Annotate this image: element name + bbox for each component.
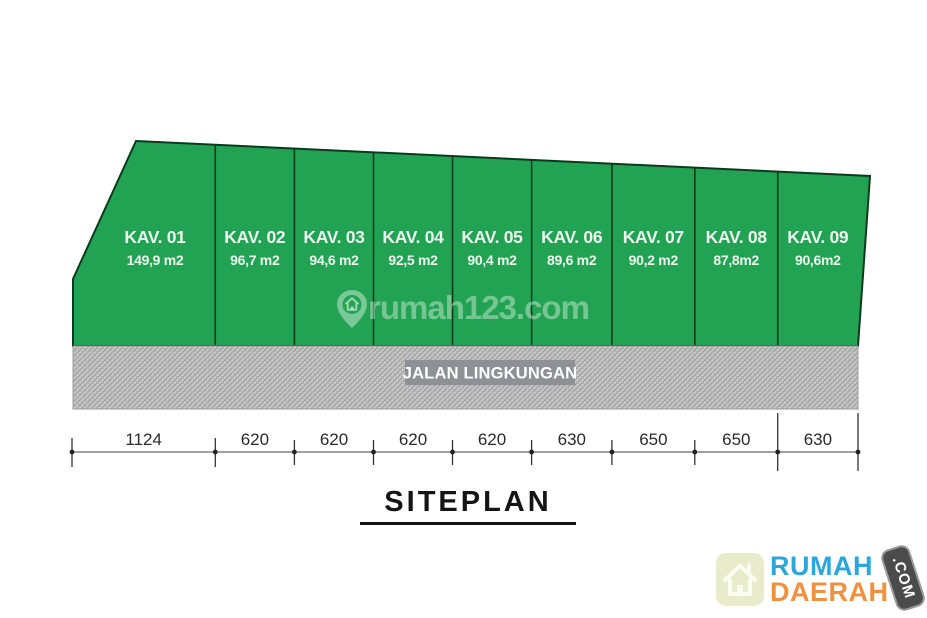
dimension-chain: 1124 620 620 620 620 630 650 650 630 (70, 413, 861, 471)
road: JALAN LINGKUNGAN (73, 346, 858, 409)
brand-name-line2: DAERAH (770, 579, 889, 605)
plot-label-area: 90,2 m2 (629, 252, 679, 268)
plot-label-area: 96,7 m2 (230, 252, 280, 268)
plot-label-name: KAV. 08 (706, 227, 768, 247)
dimension-value: 630 (558, 430, 586, 449)
plot-label-area: 87,8m2 (713, 252, 759, 268)
siteplan-canvas: KAV. 01 149,9 m2 KAV. 02 96,7 m2 KAV. 03… (0, 0, 927, 618)
dimension-value: 650 (639, 430, 667, 449)
plot-label-area: 92,5 m2 (388, 252, 438, 268)
plot-label-name: KAV. 05 (461, 227, 523, 247)
road-label: JALAN LINGKUNGAN (403, 365, 578, 383)
plot-label-name: KAV. 06 (541, 227, 603, 247)
dimension-value: 620 (399, 430, 427, 449)
dimension-value: 1124 (125, 430, 162, 449)
brand-name-line1: RUMAH (770, 553, 889, 579)
watermark: rumah123.com (337, 289, 589, 328)
plot-label-area: 90,6m2 (795, 252, 841, 268)
brand-name: RUMAH DAERAH (770, 553, 889, 605)
plot-label-name: KAV. 03 (303, 227, 365, 247)
plot-label-area: 89,6 m2 (547, 252, 597, 268)
dimension-value: 630 (804, 430, 832, 449)
plot-label-area: 90,4 m2 (467, 252, 517, 268)
siteplan-title: SITEPLAN (360, 486, 576, 525)
dimension-value: 620 (478, 430, 506, 449)
plot-label-name: KAV. 04 (382, 227, 444, 247)
plot-label-area: 94,6 m2 (309, 252, 359, 268)
plot-label-name: KAV. 02 (224, 227, 286, 247)
dimension-values: 1124 620 620 620 620 630 650 650 630 (125, 430, 832, 449)
dimension-value: 650 (722, 430, 750, 449)
plot-label-name: KAV. 01 (124, 227, 186, 247)
dimension-value: 620 (241, 430, 269, 449)
siteplan-drawing: KAV. 01 149,9 m2 KAV. 02 96,7 m2 KAV. 03… (0, 0, 927, 618)
plot-label-name: KAV. 09 (787, 227, 849, 247)
plot-label-name: KAV. 07 (623, 227, 684, 247)
dimension-value: 620 (320, 430, 348, 449)
plot-label-area: 149,9 m2 (127, 252, 184, 268)
home-icon (716, 553, 764, 606)
watermark-text: rumah123.com (368, 289, 589, 326)
